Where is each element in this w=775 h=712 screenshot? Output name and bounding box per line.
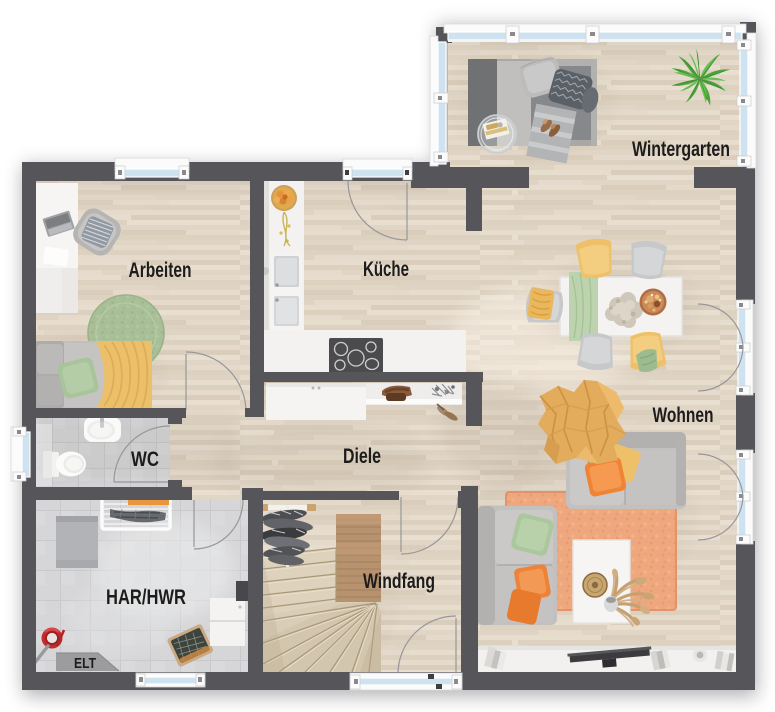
svg-text:HAR/HWR: HAR/HWR xyxy=(106,586,186,609)
svg-text:Wintergarten: Wintergarten xyxy=(632,138,730,161)
svg-text:Küche: Küche xyxy=(363,258,409,281)
svg-text:WC: WC xyxy=(131,448,159,471)
svg-text:Arbeiten: Arbeiten xyxy=(129,259,192,282)
svg-text:ELT: ELT xyxy=(74,655,96,672)
svg-text:Wohnen: Wohnen xyxy=(653,404,714,427)
svg-text:Diele: Diele xyxy=(343,445,381,468)
svg-text:Windfang: Windfang xyxy=(363,570,435,593)
